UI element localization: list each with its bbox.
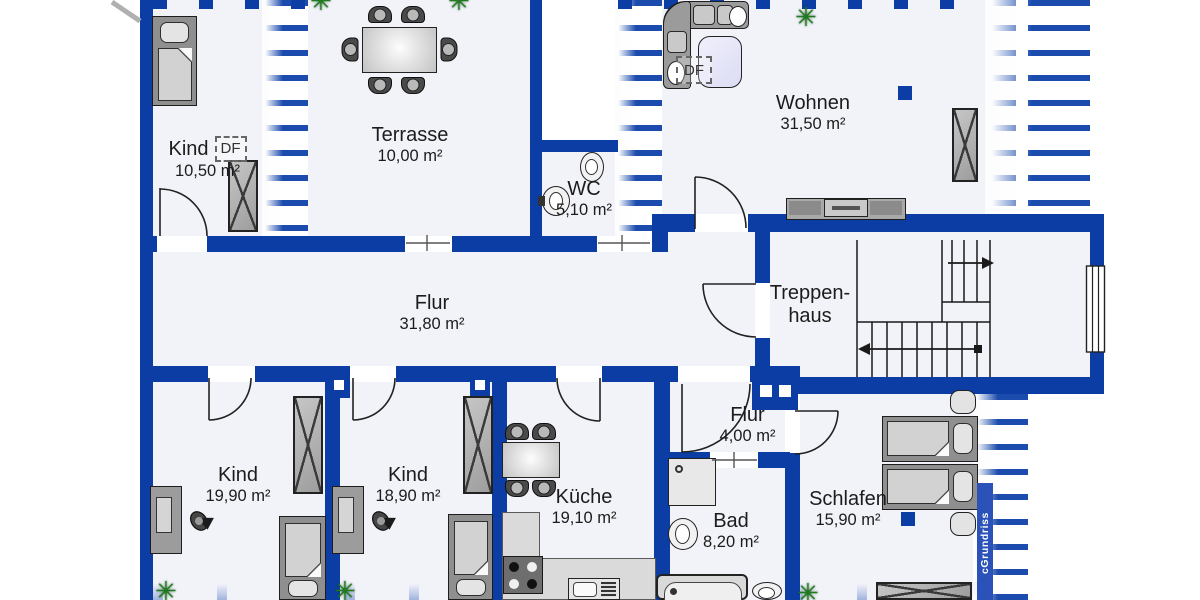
desk-chair-icon <box>187 505 217 535</box>
room-name: Bad <box>685 510 777 533</box>
door-arc <box>795 411 838 454</box>
door-arc <box>557 378 600 421</box>
room-name: Wohnen <box>758 92 868 115</box>
df-text: DF <box>221 140 241 157</box>
door-arc <box>703 284 756 337</box>
door-threshold <box>406 235 450 251</box>
room-label-treppenhaus: Treppen- haus <box>758 282 862 328</box>
room-label-wohnen: Wohnen 31,50 m² <box>758 92 868 134</box>
room-label-flur-klein: Flur 4,00 m² <box>700 404 795 446</box>
roof-edge-line <box>112 2 140 21</box>
room-label-wc: WC 5,10 m² <box>548 178 620 220</box>
window-icon <box>1087 266 1105 352</box>
room-label-kueche: Küche 19,10 m² <box>530 486 638 528</box>
room-area: 15,90 m² <box>792 511 904 530</box>
room-name: Schlafen <box>792 488 904 511</box>
room-name: Kind <box>188 464 288 487</box>
door-arc <box>209 378 251 420</box>
room-label-terrasse: Terrasse 10,00 m² <box>350 124 470 166</box>
watermark: cGrundriss <box>977 483 993 600</box>
room-area: 19,90 m² <box>188 487 288 506</box>
skylight-df-label: DF <box>676 56 712 84</box>
room-label-bad: Bad 8,20 m² <box>685 510 777 552</box>
room-name: Kind <box>358 464 458 487</box>
room-label-kind-mitte: Kind 18,90 m² <box>358 464 458 506</box>
room-label-flur: Flur 31,80 m² <box>382 292 482 334</box>
stair-direction-arrow <box>858 257 994 355</box>
room-area: 18,90 m² <box>358 487 458 506</box>
room-area: 8,20 m² <box>685 533 777 552</box>
room-area: 31,50 m² <box>758 115 868 134</box>
room-area: 10,50 m² <box>150 162 265 181</box>
door-threshold <box>598 235 650 251</box>
room-name: Küche <box>530 486 638 509</box>
room-name: Flur <box>382 292 482 315</box>
watermark-text: cGrundriss <box>979 512 991 574</box>
df-text: DF <box>684 62 704 79</box>
floorplan: DF <box>0 0 1200 600</box>
room-label-schlafen: Schlafen 15,90 m² <box>792 488 904 530</box>
door-threshold <box>712 452 757 468</box>
door-arc <box>695 177 746 229</box>
door-arc <box>353 378 395 420</box>
room-name: Treppen- <box>758 282 862 305</box>
room-name: WC <box>548 178 620 201</box>
room-name: Kind <box>168 138 208 161</box>
room-label-kind-links: Kind 19,90 m² <box>188 464 288 506</box>
room-area: 5,10 m² <box>548 201 620 220</box>
skylight-df-label: DF <box>215 136 247 162</box>
room-area: 19,10 m² <box>530 509 638 528</box>
room-name: Flur <box>700 404 795 427</box>
room-area: 4,00 m² <box>700 427 795 446</box>
stairs-icon <box>857 240 990 377</box>
room-area: 31,80 m² <box>382 315 482 334</box>
room-label-kind-top: Kind DF 10,50 m² <box>150 136 265 181</box>
door-arc <box>160 188 207 236</box>
room-name: haus <box>758 305 862 328</box>
desk-chair-icon <box>369 505 399 535</box>
room-area: 10,00 m² <box>350 147 470 166</box>
room-name: Terrasse <box>350 124 470 147</box>
